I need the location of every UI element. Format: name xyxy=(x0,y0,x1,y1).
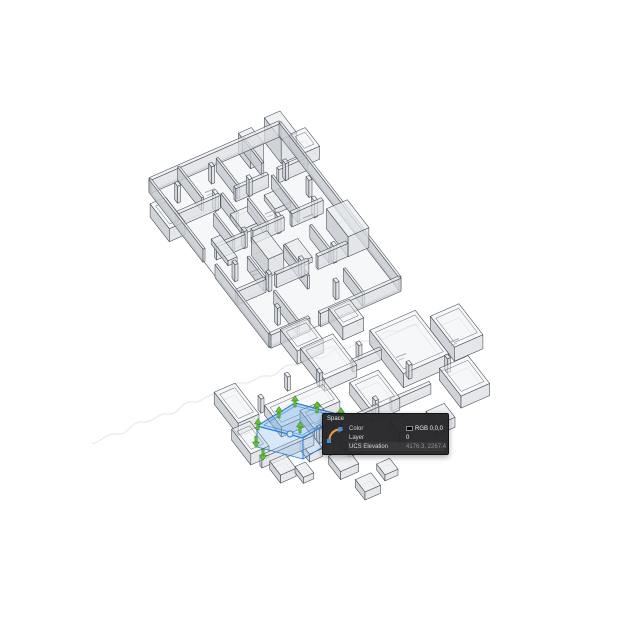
color-value: RGB 0,0,0 xyxy=(415,426,443,432)
viewport-canvas[interactable] xyxy=(0,0,640,640)
tooltip-row-color: Color RGB 0,0,0 xyxy=(348,424,445,433)
color-label: Color xyxy=(349,426,406,432)
tooltip-row-ucs-elevation: UCS Elevation 4176.3, 2267.4 xyxy=(348,442,445,451)
center-grip[interactable] xyxy=(287,431,293,437)
tooltip-row-layer: Layer 0 xyxy=(348,433,445,442)
upper-floor-plan[interactable] xyxy=(149,111,401,364)
rollover-tooltip: Space Color RGB 0,0,0 xyxy=(322,413,449,455)
tooltip-title: Space xyxy=(327,416,445,423)
polyline-arc-icon xyxy=(326,426,344,444)
ucs-elevation-label: UCS Elevation xyxy=(349,444,406,450)
cad-viewport[interactable]: Space Color RGB 0,0,0 xyxy=(0,0,640,640)
layer-value: 0 xyxy=(406,435,409,441)
color-swatch xyxy=(406,426,413,431)
layer-label: Layer xyxy=(349,435,406,441)
ucs-elevation-value: 4176.3, 2267.4 xyxy=(406,444,446,450)
